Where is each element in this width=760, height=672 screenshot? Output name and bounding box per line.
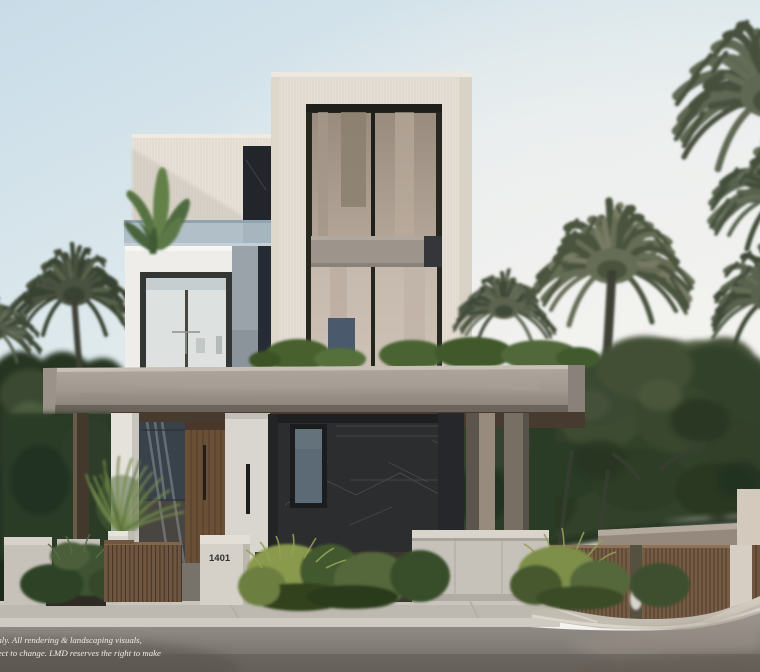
- svg-text:1401: 1401: [209, 553, 231, 564]
- svg-text:bject to change. LMD reserves: bject to change. LMD reserves the right …: [0, 648, 161, 658]
- svg-text:only. All rendering & landscap: only. All rendering & landscaping visual…: [0, 635, 142, 645]
